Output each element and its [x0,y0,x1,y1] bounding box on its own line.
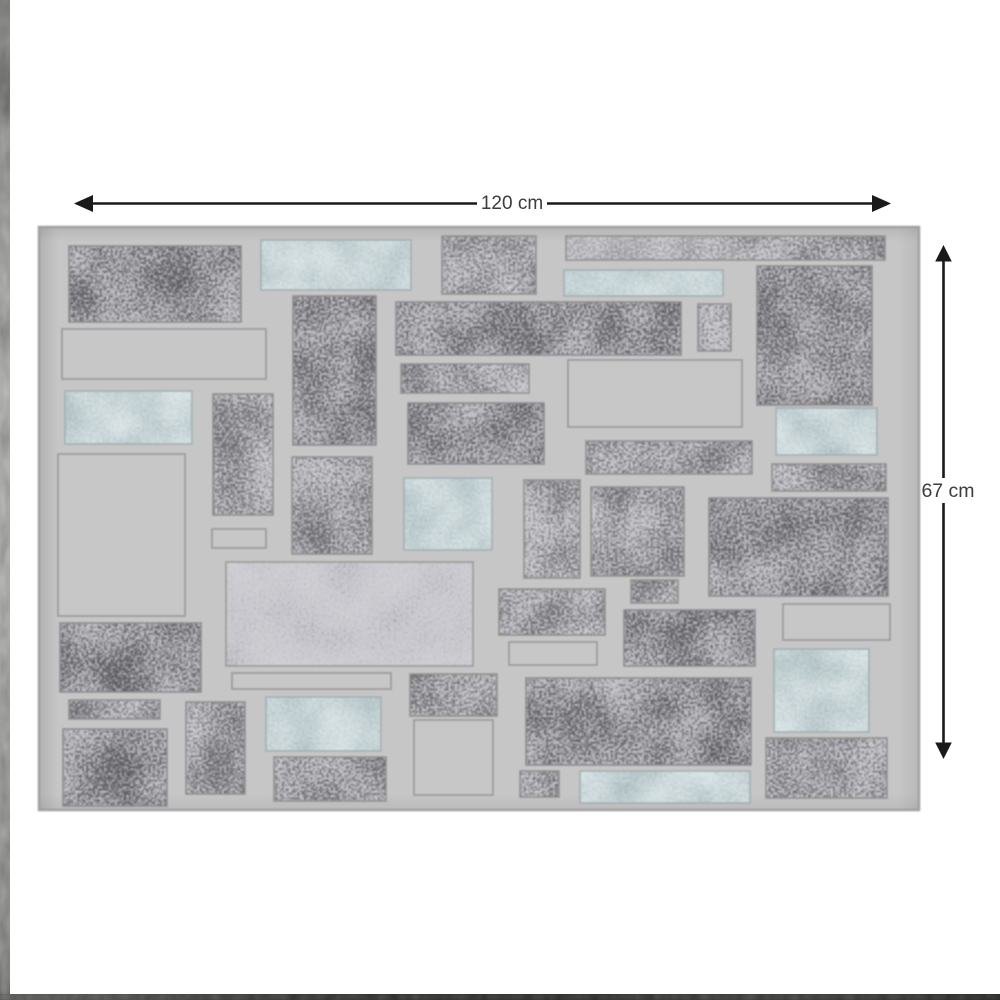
svg-text:120 cm: 120 cm [481,193,543,214]
svg-text:67 cm: 67 cm [921,480,974,502]
